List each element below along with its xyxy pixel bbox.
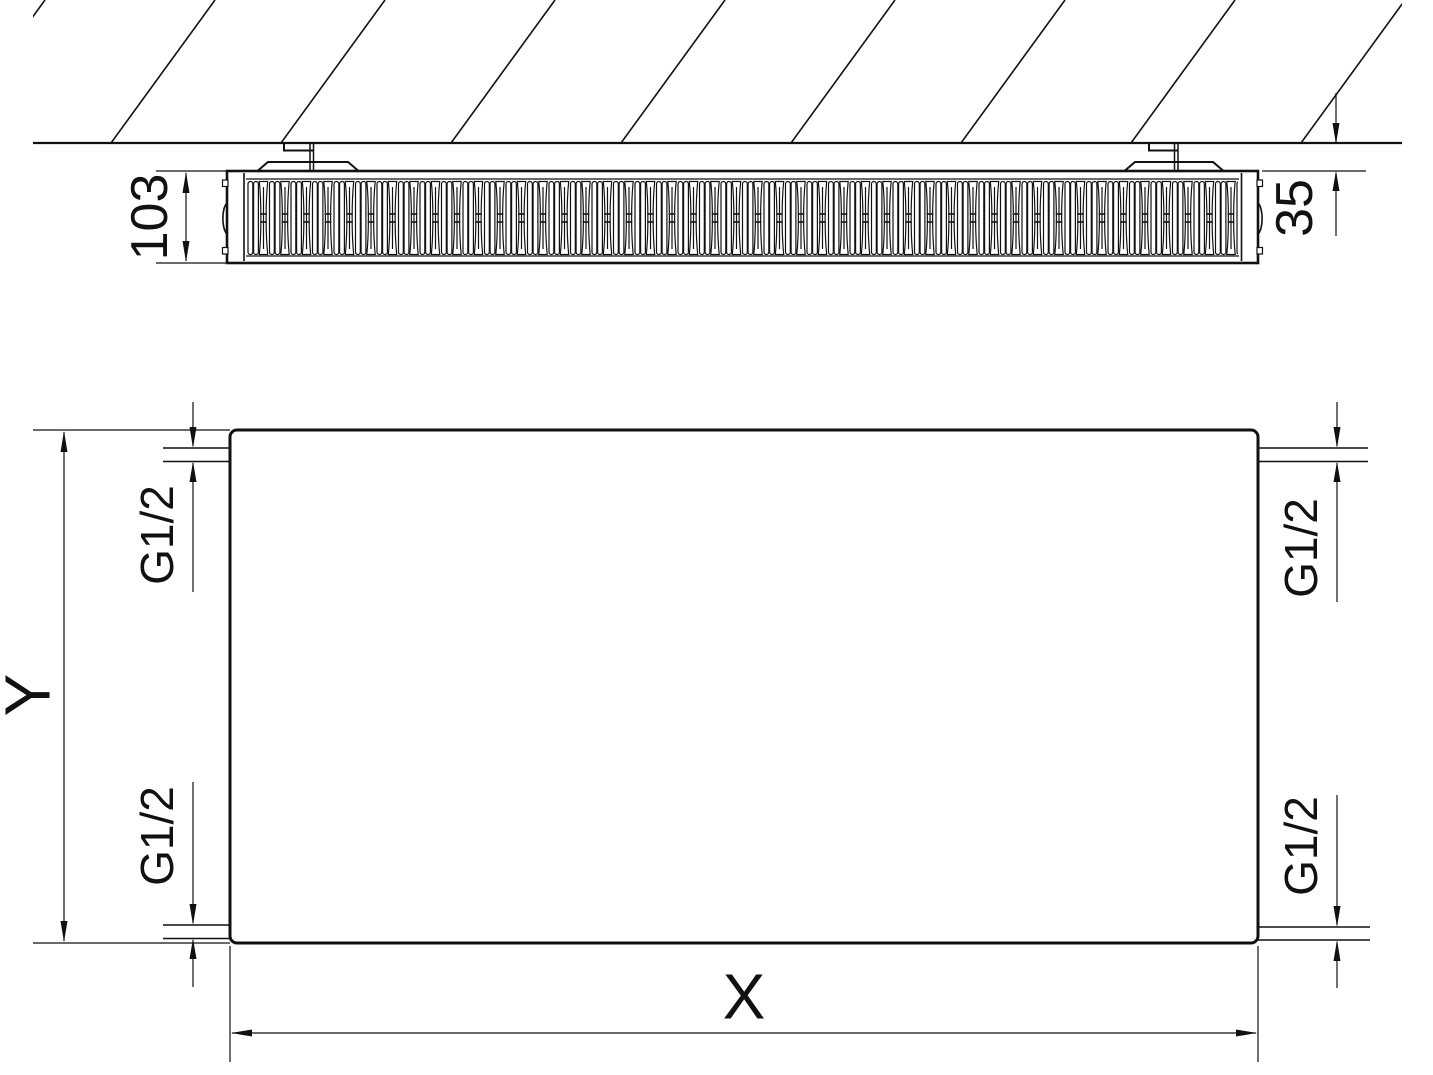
conn-label-top-right: G1/2 [1275,498,1327,598]
height-dimension-label: Y [0,674,63,717]
dimension-conn-top-right: G1/2 [1275,402,1340,602]
mounting-bracket-right [1125,144,1223,171]
conn-label-bottom-left: G1/2 [131,786,183,886]
mounting-bracket-left [258,144,358,171]
radiator-drawing: 103 35 G1/2 G1/2 [0,0,1433,1075]
dimension-height: Y [0,430,230,943]
connection-stub-bottom-right [1258,927,1370,940]
dimension-width: X [230,946,1258,1062]
radiator-top-view [223,144,1263,263]
width-dimension-label: X [723,960,766,1032]
dimension-wall-distance: 35 [1262,93,1366,237]
dimension-conn-bottom-right: G1/2 [1275,795,1340,988]
convector-fins [247,180,1238,256]
dimension-conn-bottom-left: G1/2 [131,782,196,987]
connection-stub-top-left [163,448,230,462]
connection-stub-top-right [1258,448,1368,462]
radiator-front-panel [230,430,1258,943]
connection-stub-bottom-left [163,925,230,939]
conn-label-top-left: G1/2 [131,485,183,585]
wall-hatching [0,0,1433,143]
conn-label-bottom-right: G1/2 [1275,796,1327,896]
dimension-depth: 103 [121,171,227,263]
depth-dimension-label: 103 [121,174,179,261]
wall-distance-dimension-label: 35 [1266,179,1324,237]
